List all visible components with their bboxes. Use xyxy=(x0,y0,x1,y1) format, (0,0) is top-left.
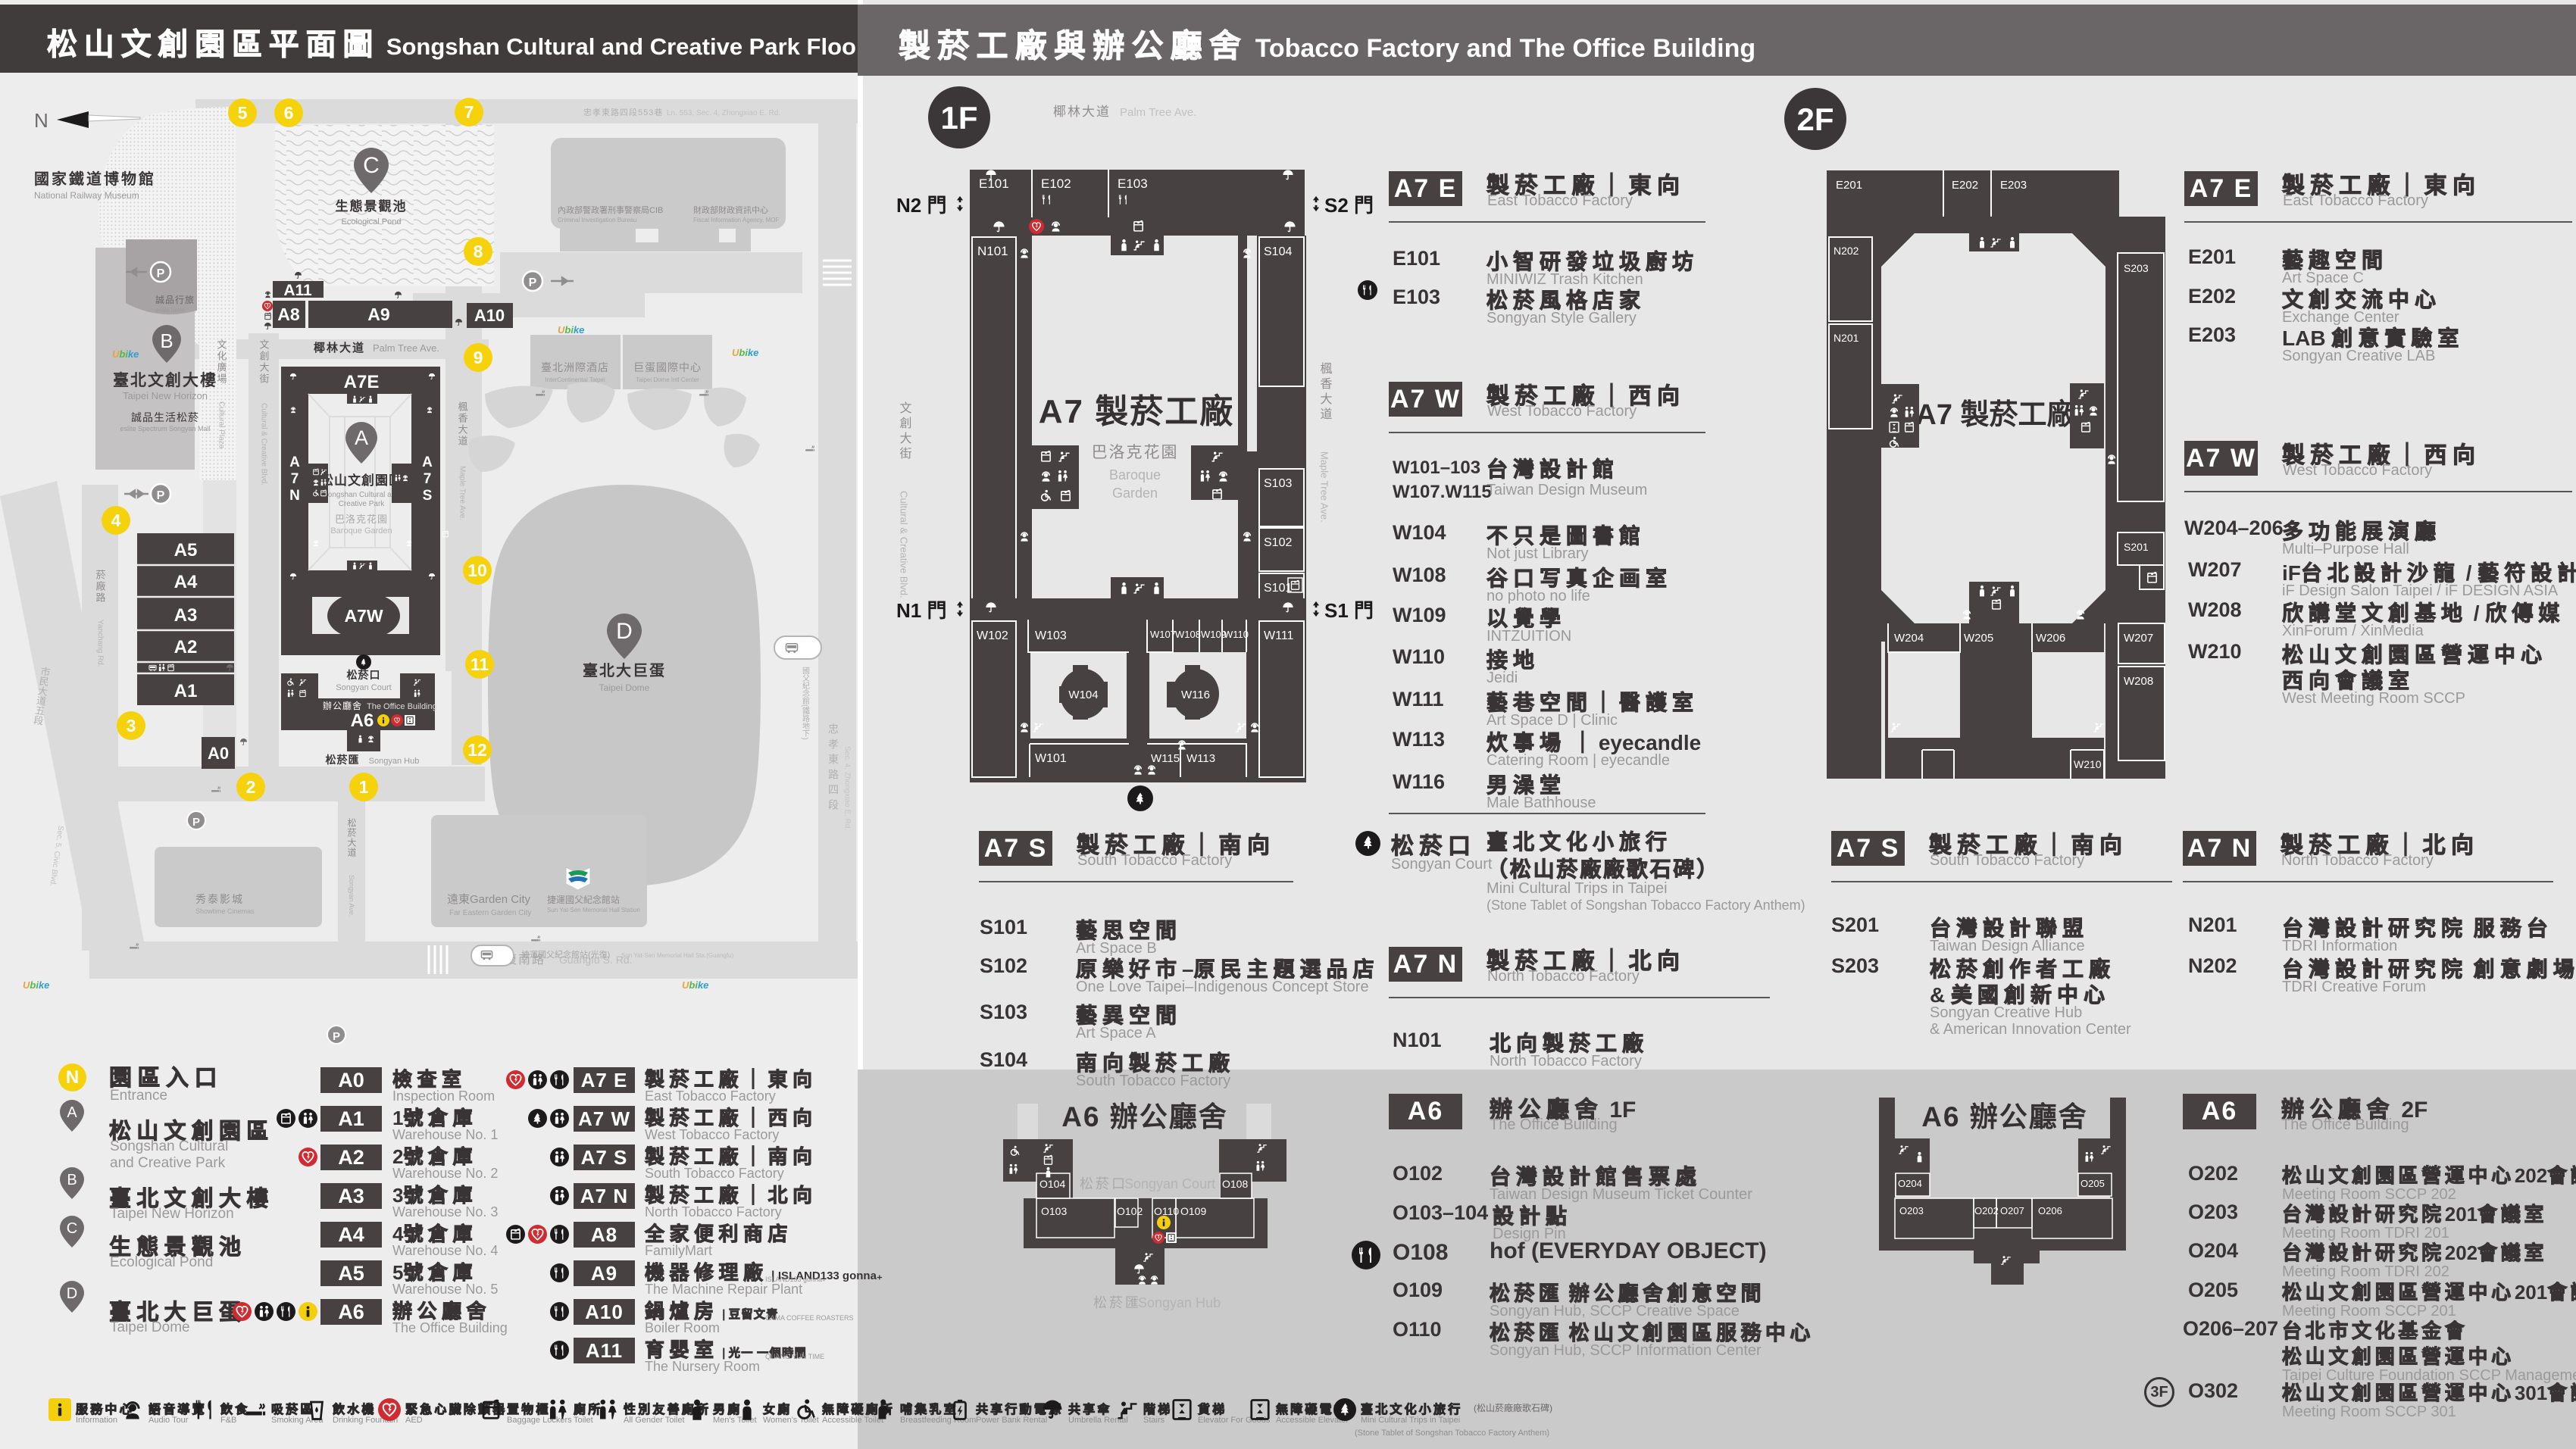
svg-text:O205: O205 xyxy=(2080,1178,2105,1189)
svg-text:楓香大道: 楓香大道 xyxy=(1318,362,1333,423)
svg-text:A4: A4 xyxy=(174,572,198,592)
svg-text:Taipei New Horizon: Taipei New Horizon xyxy=(123,390,208,401)
svg-text:National Railway Museum: National Railway Museum xyxy=(34,190,139,201)
svg-text:E203: E203 xyxy=(2000,179,2027,192)
svg-text:Maple Tree Ave.: Maple Tree Ave. xyxy=(1319,451,1330,523)
svg-text:Ln. 553, Sec. 4, Zhongxiao E.: Ln. 553, Sec. 4, Zhongxiao E. Rd. xyxy=(667,109,780,117)
svg-text:Ubike: Ubike xyxy=(23,979,49,991)
svg-text:W208: W208 xyxy=(2124,675,2153,688)
svg-text:Ecological Pond: Ecological Pond xyxy=(342,217,402,226)
svg-text:8: 8 xyxy=(474,242,483,261)
svg-text:捷運國父紀念館站(光復): 捷運國父紀念館站(光復) xyxy=(521,949,610,960)
svg-text:E201: E201 xyxy=(1836,179,1862,192)
svg-text:6: 6 xyxy=(284,103,294,123)
svg-text:5: 5 xyxy=(238,103,248,123)
svg-text:W103: W103 xyxy=(1035,629,1067,642)
svg-text:A7E: A7E xyxy=(344,372,380,392)
svg-text:1F: 1F xyxy=(940,100,977,136)
svg-text:N202: N202 xyxy=(1834,245,1859,257)
svg-text:W110: W110 xyxy=(1224,629,1249,640)
svg-text:椰林大道: 椰林大道 xyxy=(1053,105,1111,119)
svg-text:A: A xyxy=(289,454,300,470)
svg-text:臺北大巨蛋: 臺北大巨蛋 xyxy=(583,662,666,679)
svg-text:Taipei Dome Intl Center: Taipei Dome Intl Center xyxy=(636,376,699,383)
svg-text:國父紀念館(鐵路地下): 國父紀念館(鐵路地下) xyxy=(801,667,810,740)
svg-text:Songshan Cultural and: Songshan Cultural and xyxy=(323,491,400,499)
svg-text:Sun Yat-Sen Memorial Hall Sta.: Sun Yat-Sen Memorial Hall Sta.(Guangfu) xyxy=(621,952,734,959)
svg-text:W111: W111 xyxy=(1264,629,1294,642)
svg-text:Baroque Garden: Baroque Garden xyxy=(330,526,392,536)
svg-text:Songyan Court: Songyan Court xyxy=(336,683,391,692)
svg-text:文化廣場: 文化廣場 xyxy=(216,339,227,385)
svg-text:文創大街: 文創大街 xyxy=(258,339,270,385)
svg-text:遠東Garden City: 遠東Garden City xyxy=(447,893,531,906)
svg-text:E103: E103 xyxy=(1118,176,1148,191)
svg-text:W210: W210 xyxy=(2074,758,2102,770)
svg-text:4: 4 xyxy=(111,511,121,530)
svg-text:Ubike: Ubike xyxy=(558,324,584,336)
svg-text:W101: W101 xyxy=(1035,752,1067,765)
svg-text:A5: A5 xyxy=(174,540,198,561)
svg-text:A: A xyxy=(67,1104,77,1121)
svg-text:內政部警政署刑事警察局CIB: 內政部警政署刑事警察局CIB xyxy=(558,205,663,215)
svg-text:N1 門: N1 門 xyxy=(896,599,946,622)
svg-text:巴洛克花園: 巴洛克花園 xyxy=(1092,444,1179,461)
svg-text:Far Eastern Garden City: Far Eastern Garden City xyxy=(449,909,531,917)
svg-text:W104: W104 xyxy=(1068,689,1098,701)
svg-text:A9: A9 xyxy=(367,304,389,324)
svg-text:文創大街: 文創大街 xyxy=(898,401,912,462)
svg-text:松菸匯: 松菸匯 xyxy=(326,754,360,766)
svg-text:Songyan Ave.: Songyan Ave. xyxy=(348,875,355,917)
svg-text:W102: W102 xyxy=(977,629,1008,642)
svg-text:A11: A11 xyxy=(283,282,312,299)
svg-text:C: C xyxy=(67,1220,77,1237)
svg-text:E102: E102 xyxy=(1041,176,1071,191)
svg-text:E101: E101 xyxy=(979,176,1009,191)
svg-text:S2 門: S2 門 xyxy=(1324,194,1374,217)
svg-text:InterContinental Taipei: InterContinental Taipei xyxy=(545,376,605,383)
svg-text:P: P xyxy=(192,816,200,829)
svg-text:3: 3 xyxy=(127,716,136,735)
svg-text:P: P xyxy=(529,276,537,289)
svg-text:忠孝東路四段553巷: 忠孝東路四段553巷 xyxy=(583,107,663,117)
svg-text:Ubike: Ubike xyxy=(732,347,758,358)
svg-text:Songyan Court: Songyan Court xyxy=(1124,1176,1215,1191)
svg-text:財政部財政資訊中心: 財政部財政資訊中心 xyxy=(693,205,768,215)
svg-text:O203: O203 xyxy=(1899,1205,1924,1216)
svg-text:W108: W108 xyxy=(1175,629,1201,640)
svg-text:辦公廳舍: 辦公廳舍 xyxy=(323,700,362,711)
svg-text:Ubike: Ubike xyxy=(682,979,708,991)
svg-text:松菸口: 松菸口 xyxy=(1080,1176,1127,1191)
svg-text:松菸匯: 松菸匯 xyxy=(1093,1295,1141,1310)
svg-text:2F: 2F xyxy=(1796,101,1834,137)
svg-text:Cultural & Creative Blvd.: Cultural & Creative Blvd. xyxy=(260,403,268,486)
svg-text:松山文創園區: 松山文創園區 xyxy=(320,473,402,488)
svg-text:12: 12 xyxy=(467,740,487,760)
svg-text:Yanchang Rd.: Yanchang Rd. xyxy=(96,620,105,667)
svg-text:A6 辦公廳舍: A6 辦公廳舍 xyxy=(1061,1101,1228,1132)
svg-text:Songyan Hub: Songyan Hub xyxy=(369,757,420,766)
svg-text:Sun Yat-Sen Memorial Hall Stat: Sun Yat-Sen Memorial Hall Station xyxy=(547,907,640,913)
svg-text:Cultural & Creative Blvd.: Cultural & Creative Blvd. xyxy=(899,491,910,598)
svg-text:B: B xyxy=(67,1172,77,1188)
svg-text:A6: A6 xyxy=(351,710,374,731)
svg-text:10: 10 xyxy=(467,561,487,580)
svg-text:W115: W115 xyxy=(1151,752,1180,765)
svg-text:W207: W207 xyxy=(2124,632,2153,645)
svg-text:S: S xyxy=(423,488,433,504)
svg-text:國家鐵道博物館: 國家鐵道博物館 xyxy=(34,170,156,188)
svg-text:P: P xyxy=(157,489,165,502)
svg-text:W204: W204 xyxy=(1894,632,1924,645)
svg-text:7: 7 xyxy=(464,102,474,122)
svg-text:S201: S201 xyxy=(2124,541,2149,553)
svg-text:松菸口: 松菸口 xyxy=(347,669,381,681)
svg-text:O102: O102 xyxy=(1117,1205,1143,1217)
svg-text:The Office Building: The Office Building xyxy=(367,702,437,711)
svg-text:菸廠路: 菸廠路 xyxy=(95,570,106,604)
svg-text:誠品生活松菸: 誠品生活松菸 xyxy=(131,411,199,423)
svg-text:eslite hotel: eslite hotel xyxy=(155,307,184,314)
svg-text:O206: O206 xyxy=(2038,1205,2062,1216)
svg-text:Sec. 5, Civic Blvd.: Sec. 5, Civic Blvd. xyxy=(48,825,64,886)
svg-text:N101: N101 xyxy=(977,244,1008,258)
svg-text:A: A xyxy=(355,426,368,449)
svg-text:1: 1 xyxy=(359,777,369,797)
svg-text:A2: A2 xyxy=(174,637,198,657)
svg-text:臺北洲際酒店: 臺北洲際酒店 xyxy=(541,361,609,373)
svg-text:Showtime Cinemas: Showtime Cinemas xyxy=(195,907,255,915)
svg-text:N201: N201 xyxy=(1834,332,1859,344)
svg-text:A8: A8 xyxy=(277,304,300,324)
svg-text:A10: A10 xyxy=(474,306,505,325)
svg-text:O103: O103 xyxy=(1041,1205,1067,1217)
svg-text:P: P xyxy=(333,1030,340,1043)
svg-text:Palm Tree Ave.: Palm Tree Ave. xyxy=(373,342,439,354)
svg-text:生態景觀池: 生態景觀池 xyxy=(336,198,408,214)
svg-text:N: N xyxy=(34,109,48,132)
svg-text:O108: O108 xyxy=(1222,1178,1248,1190)
svg-text:W116: W116 xyxy=(1181,689,1210,701)
svg-text:2: 2 xyxy=(246,777,256,797)
svg-text:Maple Tree Ave.: Maple Tree Ave. xyxy=(458,466,467,520)
svg-text:A7W: A7W xyxy=(344,606,383,626)
svg-text:O104: O104 xyxy=(1039,1178,1065,1190)
svg-text:S203: S203 xyxy=(2124,262,2149,274)
svg-text:S1 門: S1 門 xyxy=(1324,599,1374,622)
svg-text:椰林大道: 椰林大道 xyxy=(314,341,365,354)
svg-text:Criminal Investigation Bureau: Criminal Investigation Bureau xyxy=(558,217,637,223)
svg-text:Taipei Dome: Taipei Dome xyxy=(599,682,650,693)
svg-text:Sec. 4, Zhongxiao E. Rd.: Sec. 4, Zhongxiao E. Rd. xyxy=(843,746,852,830)
svg-text:O202: O202 xyxy=(1974,1205,1999,1216)
svg-text:W205: W205 xyxy=(1964,632,1993,645)
svg-text:A: A xyxy=(422,454,433,470)
svg-text:7: 7 xyxy=(424,471,432,487)
svg-text:Cultural Plaza: Cultural Plaza xyxy=(217,401,226,449)
svg-text:忠孝東路四段: 忠孝東路四段 xyxy=(827,723,839,814)
svg-text:D: D xyxy=(67,1285,77,1302)
svg-text:A0: A0 xyxy=(208,744,229,763)
svg-text:臺北文創大樓: 臺北文創大樓 xyxy=(113,371,217,389)
svg-text:D: D xyxy=(616,619,633,644)
svg-text:O109: O109 xyxy=(1180,1205,1206,1217)
svg-text:巴洛克花園: 巴洛克花園 xyxy=(335,514,388,525)
svg-text:E202: E202 xyxy=(1952,179,1978,192)
svg-text:N2 門: N2 門 xyxy=(896,194,946,217)
svg-text:9: 9 xyxy=(474,348,483,367)
svg-text:松菸大道: 松菸大道 xyxy=(346,818,357,857)
svg-text:S104: S104 xyxy=(1264,245,1292,258)
svg-text:秀泰影城: 秀泰影城 xyxy=(195,893,244,905)
svg-text:Garden: Garden xyxy=(1112,486,1158,501)
svg-text:A3: A3 xyxy=(174,605,198,626)
svg-text:A6 辦公廳舍: A6 辦公廳舍 xyxy=(1921,1101,2088,1132)
svg-text:巨蛋國際中心: 巨蛋國際中心 xyxy=(633,361,702,373)
svg-text:S102: S102 xyxy=(1264,536,1292,549)
svg-text:N: N xyxy=(289,488,300,504)
svg-text:eslite Spectrum Songyan Mall: eslite Spectrum Songyan Mall xyxy=(120,425,210,433)
svg-text:O204: O204 xyxy=(1898,1178,1922,1189)
svg-text:B: B xyxy=(160,329,173,352)
svg-text:S103: S103 xyxy=(1264,477,1292,490)
svg-text:Creative Park: Creative Park xyxy=(339,500,386,508)
svg-text:W109: W109 xyxy=(1201,629,1227,640)
svg-text:W113: W113 xyxy=(1186,752,1215,765)
svg-text:A7 製菸工廠: A7 製菸工廠 xyxy=(1039,392,1234,430)
svg-text:Songyan Hub: Songyan Hub xyxy=(1138,1295,1221,1310)
svg-text:A7 製菸工廠: A7 製菸工廠 xyxy=(1915,398,2075,431)
svg-text:W107: W107 xyxy=(1150,629,1176,640)
svg-text:O207: O207 xyxy=(2000,1205,2024,1216)
svg-text:Ubike: Ubike xyxy=(112,348,139,360)
svg-text:A1: A1 xyxy=(174,681,198,701)
svg-text:C: C xyxy=(363,153,380,178)
svg-text:P: P xyxy=(157,267,165,280)
svg-text:捷運國父紀念館站: 捷運國父紀念館站 xyxy=(547,894,620,905)
svg-text:誠品行旅: 誠品行旅 xyxy=(155,295,195,305)
svg-text:楓香大道: 楓香大道 xyxy=(457,401,468,447)
svg-text:11: 11 xyxy=(470,654,489,674)
svg-text:W206: W206 xyxy=(2036,632,2065,645)
svg-text:Fiscal Information Agency, MOF: Fiscal Information Agency, MOF xyxy=(693,217,779,223)
svg-text:Baroque: Baroque xyxy=(1109,467,1161,482)
svg-text:7: 7 xyxy=(291,471,299,487)
svg-text:Palm Tree Ave.: Palm Tree Ave. xyxy=(1120,106,1196,119)
